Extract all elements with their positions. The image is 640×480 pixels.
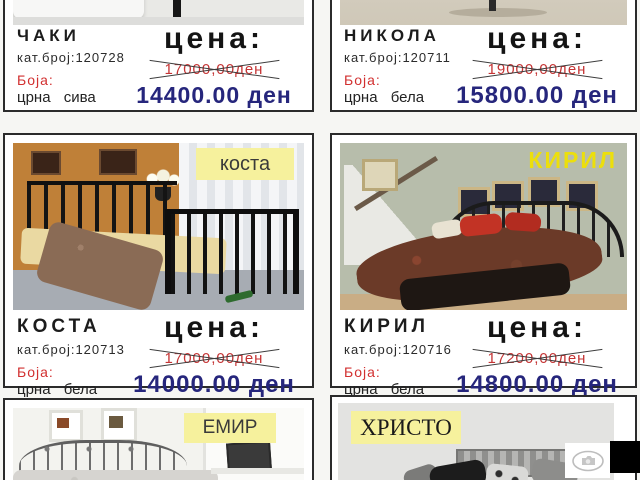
product-info: ЧАКИ кат.број:120728 Боја: црна сива <box>17 26 125 106</box>
product-tag-kosta: коста <box>196 148 294 180</box>
color-label: Боја: <box>344 364 452 380</box>
old-price-strikethrough: 17000,00ден <box>165 350 264 367</box>
color-value: црна сива <box>17 89 125 106</box>
color-label: Боја: <box>17 364 125 380</box>
new-price: 15800.00 ден <box>443 82 631 110</box>
black-square-overlay <box>610 441 640 473</box>
catalog-page: ЧАКИ кат.број:120728 Боја: црна сива цен… <box>0 0 640 480</box>
product-card-nikola: НИКОЛА кат.број:120711 Боја: црна бела ц… <box>330 0 637 112</box>
picture-frame <box>99 149 137 175</box>
price-label: цена: <box>443 311 631 345</box>
old-price-strikethrough: 17000,00ден <box>165 61 264 78</box>
new-price: 14400.00 ден <box>120 82 308 109</box>
desk <box>211 468 304 474</box>
picture-frame <box>362 159 398 191</box>
product-name: КОСТА <box>17 316 125 338</box>
product-card-kiril: КИРИЛ КИРИЛ кат.број:120716 Боја: црна б… <box>330 133 637 388</box>
price-block: цена: 17200,00ден 14800.00 ден <box>443 311 631 399</box>
price-block: цена: 19000,00ден 15800.00 ден <box>443 22 631 110</box>
product-card-kosta: коста КОСТА кат.број:120713 Боја: црна б… <box>3 133 314 388</box>
picture-frame <box>49 410 83 442</box>
catalog-number: кат.број:120728 <box>17 50 125 65</box>
product-tag-kiril: КИРИЛ <box>528 147 617 174</box>
product-name: НИКОЛА <box>344 26 451 46</box>
old-price-strikethrough: 17200,00ден <box>488 350 587 367</box>
price-block: цена: 17000,00ден 14400.00 ден <box>120 22 308 109</box>
catalog-number: кат.број:120716 <box>344 342 452 357</box>
pillow <box>504 212 541 232</box>
product-info: НИКОЛА кат.број:120711 Боја: црна бела <box>344 26 451 106</box>
new-price: 14000.00 ден <box>120 371 308 399</box>
product-photo-kosta: коста <box>13 143 304 310</box>
catalog-number: кат.број:120711 <box>344 50 451 65</box>
color-label: Боја: <box>17 72 125 88</box>
product-photo-emir: ЕМИР <box>13 408 304 480</box>
product-name: ЧАКИ <box>17 26 125 46</box>
picture-frame <box>101 408 137 442</box>
price-block: цена: 17000,00ден 14000.00 ден <box>120 311 308 399</box>
camera-icon <box>571 450 605 472</box>
old-price-strikethrough: 19000,00ден <box>488 61 587 78</box>
color-label: Боја: <box>344 72 451 88</box>
price-label: цена: <box>120 22 308 56</box>
catalog-number: кат.број:120713 <box>17 342 125 357</box>
color-value: црна бела <box>17 381 125 398</box>
image-placeholder <box>565 443 610 478</box>
product-tag-emir: ЕМИР <box>184 413 276 443</box>
price-label: цена: <box>443 22 631 56</box>
bed-illustration <box>489 0 496 11</box>
product-tag-hristo: ХРИСТО <box>351 411 461 444</box>
product-card-emir: ЕМИР <box>3 398 314 480</box>
product-info: КОСТА кат.број:120713 Боја: црна бела <box>17 316 125 398</box>
picture-frame <box>31 151 61 175</box>
product-name: КИРИЛ <box>344 316 452 338</box>
bed-bedding <box>13 470 218 480</box>
color-value: црна бела <box>344 89 451 106</box>
product-photo-kiril: КИРИЛ <box>340 143 627 310</box>
bed-footboard <box>165 209 299 294</box>
product-info: КИРИЛ кат.број:120716 Боја: црна бела <box>344 316 452 398</box>
product-card-chaki: ЧАКИ кат.број:120728 Боја: црна сива цен… <box>3 0 314 112</box>
price-label: цена: <box>120 311 308 345</box>
